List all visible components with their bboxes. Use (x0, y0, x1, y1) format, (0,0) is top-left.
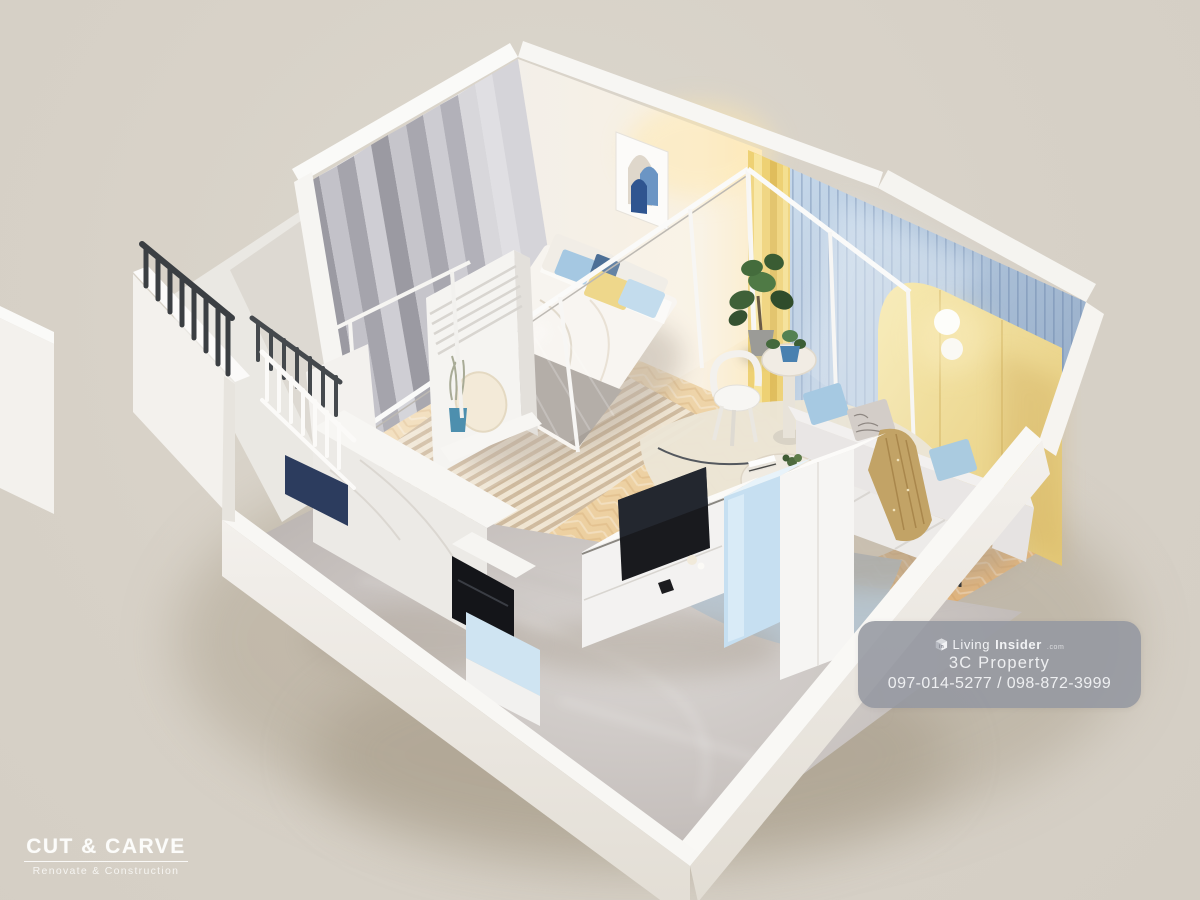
render-page: { "canvas": {"width": 1200, "height": 90… (0, 0, 1200, 900)
brand-tld: .com (1047, 644, 1065, 651)
watermark-logo: CUT & CARVE Renovate & Construction (22, 836, 190, 877)
company-name: 3C Property (858, 654, 1141, 673)
outer-wall-far-left (0, 306, 54, 514)
floorplan-svg (0, 0, 1200, 900)
wall-lamp (915, 302, 987, 374)
brand-prefix: Living (953, 637, 991, 652)
living-insider-cube-icon: in (935, 638, 948, 651)
contact-info-badge: in LivingInsider.com 3C Property 097-014… (858, 621, 1141, 708)
phone-numbers: 097-014-5277 / 098-872-3999 (858, 675, 1141, 693)
brand-suffix: Insider (995, 637, 1042, 652)
watermark-divider (24, 861, 188, 862)
floorplan-render (0, 0, 1200, 900)
brand-line: in LivingInsider.com (858, 637, 1141, 652)
watermark-subtitle: Renovate & Construction (22, 865, 190, 877)
svg-text:in: in (938, 644, 944, 650)
watermark-title: CUT & CARVE (22, 836, 190, 857)
